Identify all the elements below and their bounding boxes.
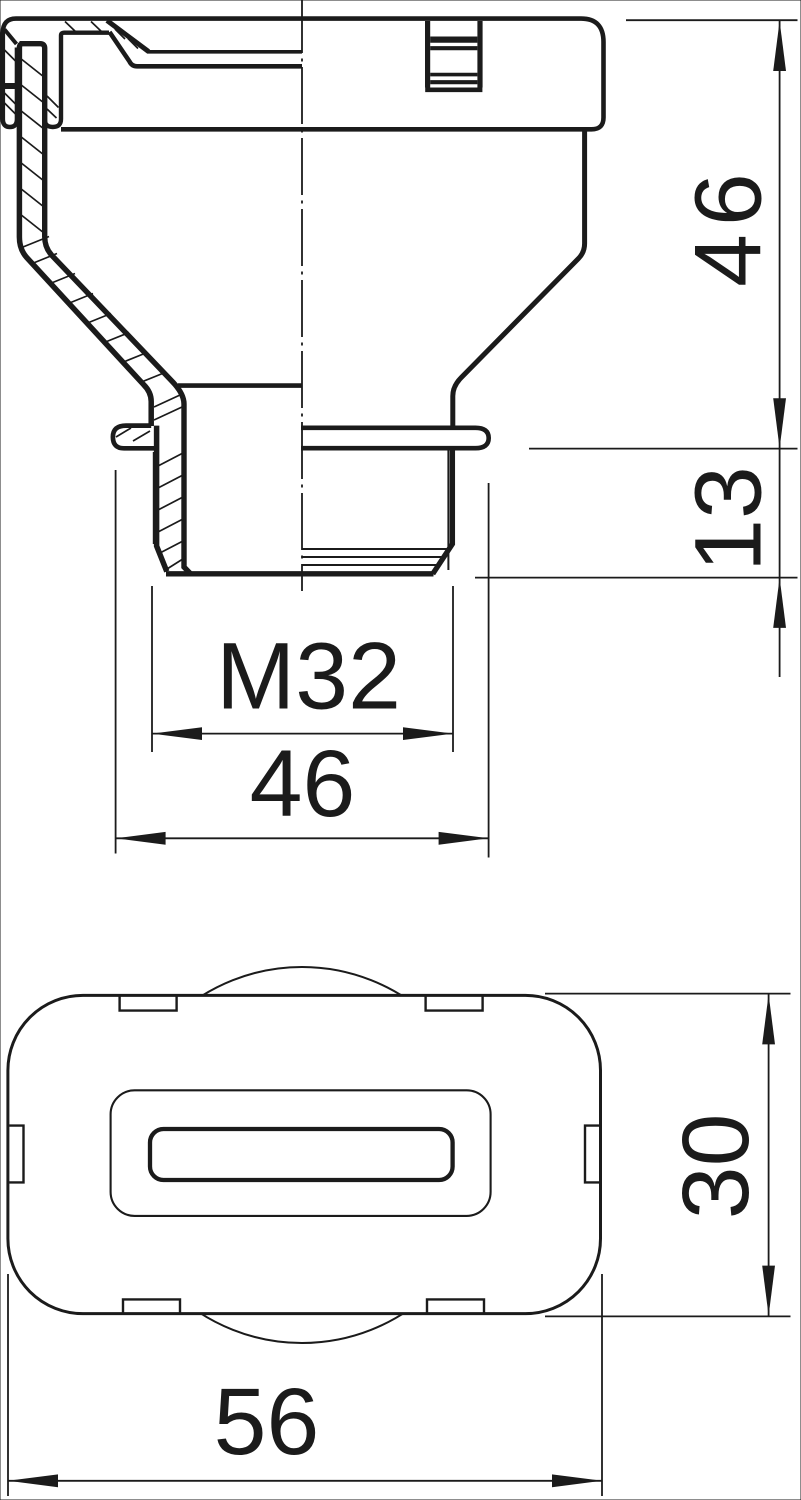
svg-text:13: 13	[676, 466, 782, 572]
svg-text:56: 56	[214, 1369, 320, 1475]
svg-text:30: 30	[663, 1114, 769, 1220]
svg-text:46: 46	[250, 731, 356, 837]
svg-text:M32: M32	[216, 624, 401, 730]
svg-text:46: 46	[676, 165, 782, 287]
